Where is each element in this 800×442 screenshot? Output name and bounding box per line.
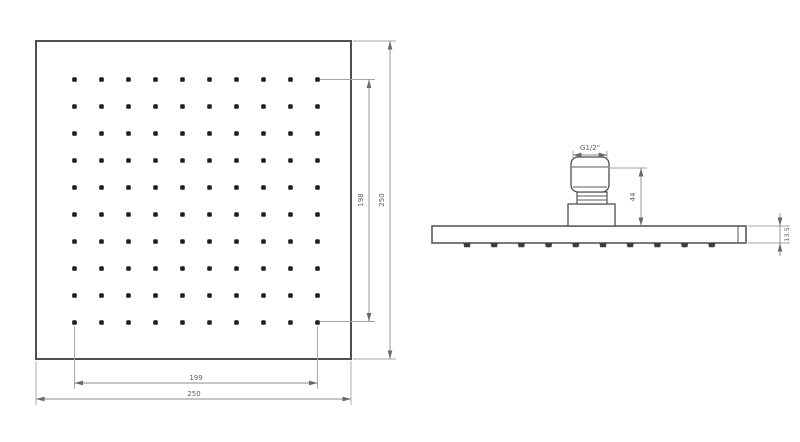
drawing-svg: 198 250 199 250 xyxy=(0,0,800,442)
nozzle-row xyxy=(463,243,716,248)
connector-base-block xyxy=(568,204,615,226)
dim-label-field-width: 199 xyxy=(189,374,202,382)
dim-label-overall-height: 250 xyxy=(378,193,386,206)
connector-assembly xyxy=(568,157,615,226)
face-view: 198 250 199 250 xyxy=(36,41,396,405)
dim-label-plate-thickness: 13.5 xyxy=(783,227,791,241)
nozzle-dot-grid xyxy=(61,66,331,336)
technical-drawing: 198 250 199 250 xyxy=(0,0,800,442)
connector-neck xyxy=(577,192,607,204)
dim-label-thread: G1/2" xyxy=(580,144,600,152)
dim-thread: G1/2" xyxy=(573,144,607,158)
dim-label-field-height: 198 xyxy=(357,193,365,206)
plate-profile xyxy=(432,226,746,243)
dim-label-overall-width: 250 xyxy=(187,390,200,398)
side-view: G1/2" 44 13.5 xyxy=(432,144,791,256)
dim-label-connector-height: 44 xyxy=(629,192,637,201)
dim-plate-thickness: 13.5 xyxy=(748,213,791,256)
